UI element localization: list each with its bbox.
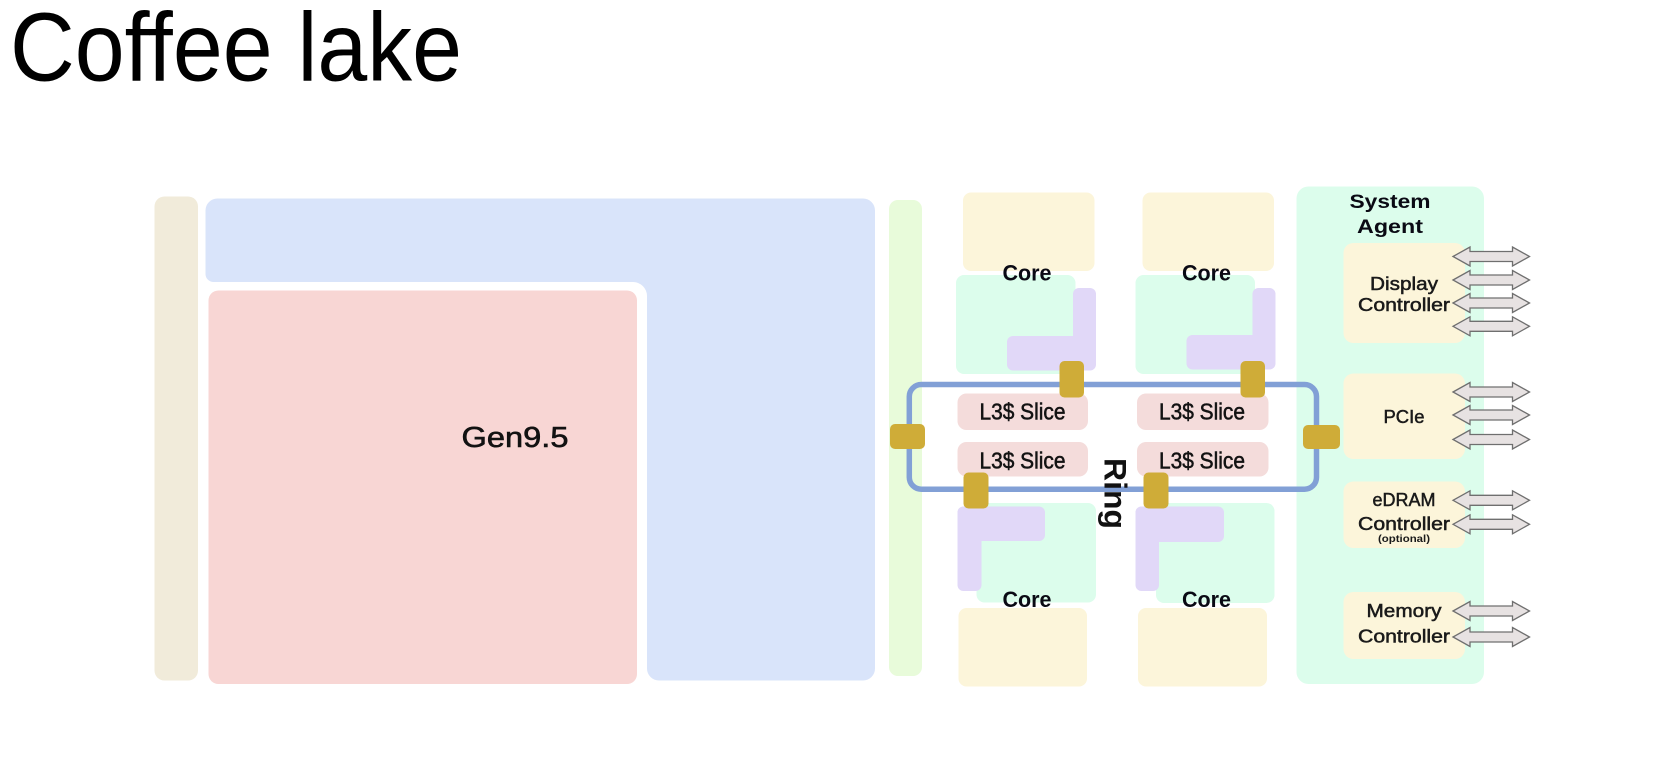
svg-text:System: System — [1350, 192, 1431, 213]
svg-text:(optional): (optional) — [1378, 534, 1430, 545]
svg-text:L3$ Slice: L3$ Slice — [1159, 448, 1245, 474]
svg-text:L3$ Slice: L3$ Slice — [980, 448, 1066, 474]
svg-text:Core: Core — [1003, 261, 1052, 286]
svg-text:L3$ Slice: L3$ Slice — [980, 399, 1066, 425]
svg-text:eDRAM: eDRAM — [1373, 490, 1436, 510]
svg-text:Ring: Ring — [1098, 458, 1134, 529]
svg-text:Display: Display — [1370, 274, 1438, 294]
svg-text:Core: Core — [1182, 261, 1231, 286]
svg-text:PCIe: PCIe — [1384, 407, 1425, 427]
svg-text:Controller: Controller — [1358, 514, 1450, 534]
svg-text:Controller: Controller — [1358, 627, 1450, 647]
svg-text:Gen9.5: Gen9.5 — [462, 422, 569, 454]
svg-text:Agent: Agent — [1357, 217, 1424, 238]
svg-text:L3$ Slice: L3$ Slice — [1159, 399, 1245, 425]
svg-text:Memory: Memory — [1367, 601, 1442, 621]
svg-text:Controller: Controller — [1358, 295, 1450, 315]
svg-text:Coffee lake: Coffee lake — [10, 0, 462, 102]
